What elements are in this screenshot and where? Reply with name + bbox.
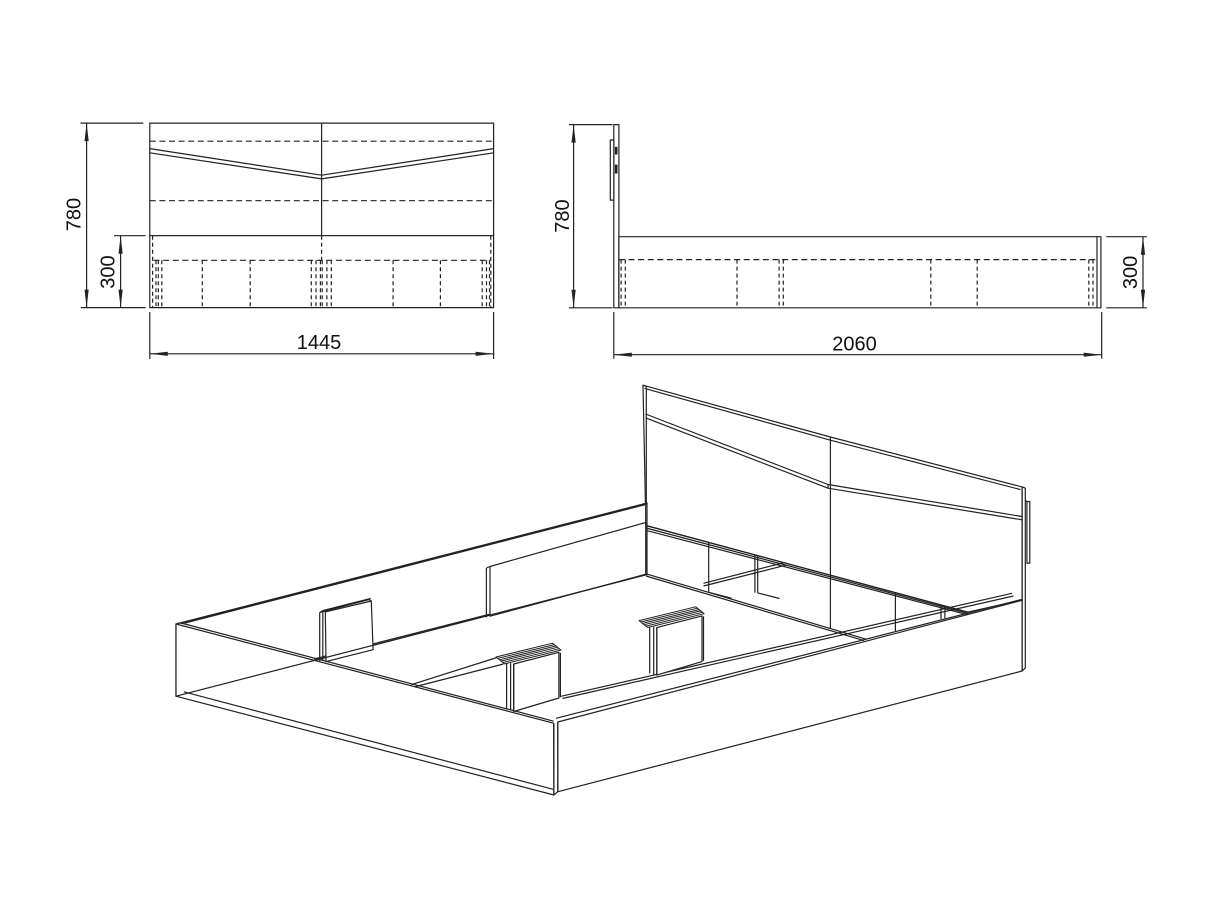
svg-text:780: 780 bbox=[552, 199, 574, 232]
svg-text:300: 300 bbox=[98, 255, 120, 288]
svg-text:300: 300 bbox=[1120, 256, 1142, 289]
svg-text:780: 780 bbox=[64, 198, 86, 231]
svg-text:2060: 2060 bbox=[832, 334, 877, 356]
svg-text:1445: 1445 bbox=[297, 332, 342, 354]
